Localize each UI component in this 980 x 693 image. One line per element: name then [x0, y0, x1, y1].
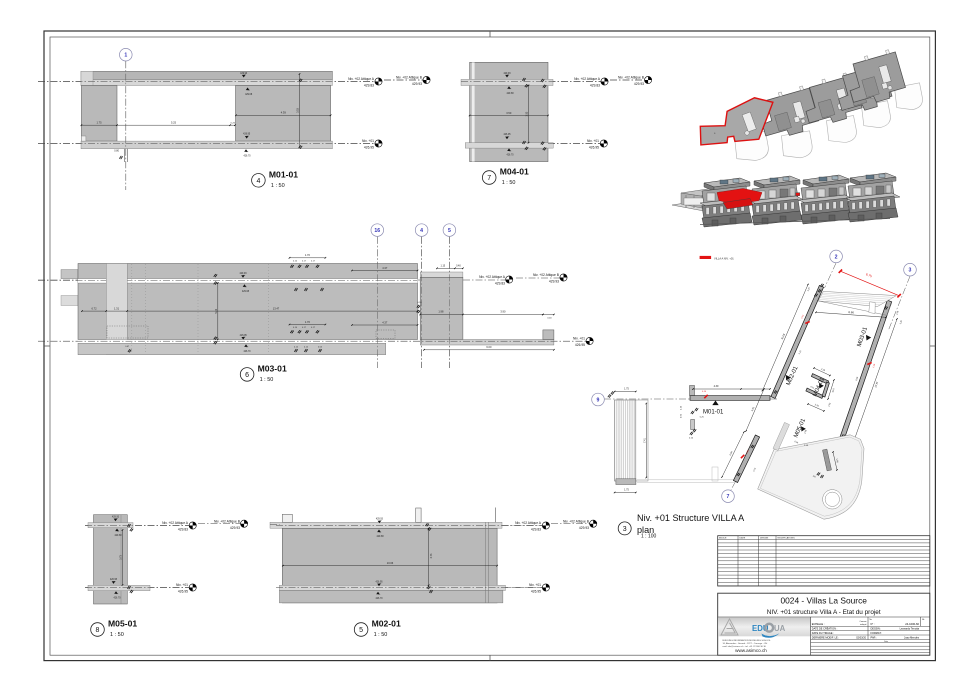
svg-text:426.95: 426.95	[364, 146, 374, 150]
svg-text:DATE DU TIRAGE :: DATE DU TIRAGE :	[812, 632, 834, 635]
svg-text:7: 7	[487, 175, 491, 182]
svg-text:www.asimco.ch: www.asimco.ch	[735, 648, 767, 653]
svg-text:426.95: 426.95	[575, 343, 585, 347]
svg-text:6.72: 6.72	[91, 306, 97, 310]
svg-text:5: 5	[359, 627, 363, 634]
svg-text:429.68: 429.68	[245, 94, 253, 96]
svg-text:5.23: 5.23	[215, 308, 218, 313]
svg-text:8.66: 8.66	[848, 310, 854, 314]
svg-text:M04-01: M04-01	[500, 167, 529, 177]
svg-text:Niv. +01: Niv. +01	[176, 583, 188, 587]
svg-text:1 : 100: 1 : 100	[641, 534, 657, 540]
svg-text:Niv. +01: Niv. +01	[529, 583, 541, 587]
svg-text:7: 7	[727, 494, 730, 500]
svg-text:1 : 50: 1 : 50	[110, 632, 124, 638]
svg-text:Niv. +02 Attique B: Niv. +02 Attique B	[396, 76, 423, 80]
svg-text:0.40: 0.40	[456, 264, 461, 267]
svg-text:4.39: 4.39	[714, 385, 719, 388]
svg-text:M02-01: M02-01	[372, 619, 401, 629]
svg-text:Leonardo Tenutta: Leonardo Tenutta	[900, 628, 920, 631]
svg-text:9: 9	[597, 398, 600, 404]
svg-text:3: 3	[623, 526, 627, 533]
svg-text:429.68: 429.68	[114, 535, 122, 537]
svg-text:429.93: 429.93	[412, 82, 422, 86]
svg-text:1: 1	[124, 53, 127, 59]
svg-text:426.95: 426.95	[110, 579, 118, 581]
svg-text:Niv. +01: Niv. +01	[573, 337, 585, 341]
svg-text:MODIFICATIONS: MODIFICATIONS	[778, 537, 796, 540]
svg-text:426.70: 426.70	[243, 351, 251, 353]
svg-text:3.50: 3.50	[506, 111, 512, 115]
svg-text:16: 16	[374, 228, 380, 234]
svg-text:429.93: 429.93	[549, 280, 559, 284]
svg-text:6: 6	[245, 372, 249, 379]
svg-text:426.70: 426.70	[243, 155, 251, 157]
svg-text:4: 4	[420, 228, 423, 234]
svg-text:02/03/20: 02/03/20	[856, 637, 866, 640]
svg-text:10, Alexandre - Gavard - 1227: 10, Alexandre - Gavard - 1227 - Carouge …	[723, 642, 768, 645]
svg-text:1 : 50: 1 : 50	[502, 180, 516, 186]
svg-text:DATE DE CRÉATION :: DATE DE CRÉATION :	[812, 628, 838, 631]
svg-text:1 : 50: 1 : 50	[260, 377, 274, 383]
svg-text:429.68: 429.68	[506, 93, 514, 95]
svg-text:INDICE: INDICE	[719, 538, 727, 540]
svg-text:DATE: DATE	[740, 537, 746, 540]
svg-text:426.95: 426.95	[240, 335, 248, 337]
svg-text:8: 8	[96, 627, 100, 634]
svg-text:1.75: 1.75	[96, 120, 102, 124]
svg-text:426.95: 426.95	[178, 590, 188, 594]
svg-text:M05-01: M05-01	[108, 619, 137, 629]
svg-text:3.73: 3.73	[430, 553, 433, 558]
svg-text:429.93: 429.93	[579, 526, 589, 530]
svg-text:3: 3	[909, 268, 912, 274]
svg-text:Niv. +02 Attique B: Niv. +02 Attique B	[533, 273, 560, 277]
svg-text:3.90: 3.90	[500, 310, 506, 314]
svg-text:DESSIN :: DESSIN :	[871, 628, 882, 631]
svg-text:426.70: 426.70	[506, 155, 514, 157]
svg-text:5: 5	[448, 228, 451, 234]
svg-text:1.70: 1.70	[305, 320, 311, 324]
svg-text:4.39: 4.39	[281, 111, 287, 115]
svg-text:429.83: 429.83	[495, 282, 505, 286]
svg-text:M01-01: M01-01	[703, 410, 724, 416]
svg-text:3.53: 3.53	[297, 108, 300, 113]
svg-text:426.95: 426.95	[531, 590, 541, 594]
svg-text:UA: UA	[774, 624, 786, 633]
svg-text:2: 2	[835, 254, 838, 260]
svg-text:429.83: 429.83	[531, 528, 541, 532]
svg-text:M01-01: M01-01	[269, 169, 298, 179]
svg-text:426.70: 426.70	[375, 598, 383, 600]
svg-text:426.95: 426.95	[243, 134, 251, 136]
svg-text:Date: Date	[884, 640, 888, 643]
svg-text:3.73: 3.73	[120, 555, 123, 560]
svg-text:Niv. +01 Structure VILLA A: Niv. +01 Structure VILLA A	[637, 513, 745, 523]
svg-text:1.70: 1.70	[305, 253, 311, 257]
svg-text:1.15: 1.15	[440, 264, 445, 267]
svg-text:0024 - Villas La Source: 0024 - Villas La Source	[780, 596, 867, 606]
svg-text:Niv. +02 Attique A: Niv. +02 Attique A	[348, 77, 375, 81]
svg-text:3.53: 3.53	[526, 111, 529, 116]
svg-text:4.37: 4.37	[382, 320, 388, 324]
svg-text:429.93: 429.93	[634, 82, 644, 86]
svg-text:1 : 50: 1 : 50	[271, 183, 285, 189]
svg-text:5.25: 5.25	[171, 120, 177, 124]
svg-text:1 : 50: 1 : 50	[374, 632, 388, 638]
svg-text:429.93: 429.93	[230, 526, 240, 530]
svg-text:13.47: 13.47	[273, 306, 280, 310]
svg-text:DERNIERE MODIF. LE :: DERNIERE MODIF. LE :	[812, 637, 840, 640]
svg-text:429.83: 429.83	[178, 528, 188, 532]
svg-text:DESSIN: DESSIN	[760, 538, 769, 540]
svg-text:Niv. +02 Attique A: Niv. +02 Attique A	[479, 275, 506, 279]
svg-text:426.95: 426.95	[375, 581, 383, 583]
svg-text:429.93: 429.93	[376, 518, 384, 520]
svg-text:Joao Mendes: Joao Mendes	[904, 637, 920, 640]
svg-text:FORMAT :: FORMAT :	[871, 632, 883, 635]
svg-text:429.93: 429.93	[503, 73, 511, 75]
svg-text:VILLA A NIV. +01: VILLA A NIV. +01	[714, 256, 734, 260]
svg-text:426.95: 426.95	[589, 146, 599, 150]
svg-text:NIV. +01 structure Villa A - E: NIV. +01 structure Villa A - Etat du pro…	[767, 609, 881, 616]
svg-text:426.70: 426.70	[113, 598, 121, 600]
svg-text:Comme: Comme	[859, 621, 867, 623]
svg-text:Niv. +01: Niv. +01	[362, 139, 374, 143]
svg-text:Niv. +02 Attique B: Niv. +02 Attique B	[563, 519, 590, 523]
svg-text:6.00: 6.00	[486, 345, 492, 349]
svg-text:1.75: 1.75	[624, 387, 629, 390]
svg-text:Niv. +02 Attique A: Niv. +02 Attique A	[574, 77, 601, 81]
svg-text:4: 4	[256, 178, 260, 185]
svg-text:429.83: 429.83	[590, 84, 600, 88]
svg-text:7.41: 7.41	[643, 438, 646, 443]
svg-text:4.37: 4.37	[382, 266, 388, 270]
svg-text:1.98: 1.98	[438, 310, 444, 314]
svg-text:M03-01: M03-01	[258, 363, 287, 373]
svg-text:429.93: 429.93	[239, 273, 247, 275]
svg-text:429.68: 429.68	[376, 536, 384, 538]
svg-text:10.06: 10.06	[387, 561, 394, 565]
svg-text:429.83: 429.83	[364, 84, 374, 88]
svg-text:No: No	[870, 619, 872, 621]
svg-text:1.75: 1.75	[624, 488, 629, 491]
svg-text:BUILDING INFORMATION MODELING: BUILDING INFORMATION MODELING SCHOOL	[723, 639, 772, 642]
svg-text:ECHELLE :: ECHELLE :	[812, 623, 825, 626]
svg-text:Niv. +02 Attique B: Niv. +02 Attique B	[618, 76, 645, 80]
svg-text:Niv. +02 Attique B: Niv. +02 Attique B	[214, 519, 241, 523]
svg-text:429.93: 429.93	[112, 516, 120, 518]
svg-text:PAR :: PAR :	[871, 637, 878, 640]
svg-text:0.80: 0.80	[114, 150, 119, 153]
svg-text:Niv. +02 Attique A: Niv. +02 Attique A	[162, 521, 189, 525]
svg-text:Niv. +01: Niv. +01	[587, 139, 599, 143]
svg-text:indiqué: indiqué	[860, 624, 867, 626]
svg-text:429.68: 429.68	[242, 291, 250, 293]
svg-text:Niv. +02 Attique A: Niv. +02 Attique A	[515, 521, 542, 525]
svg-text:426.95: 426.95	[503, 134, 511, 136]
svg-text:24-1000-60: 24-1000-60	[905, 622, 919, 626]
svg-text:Nb: Nb	[922, 619, 924, 621]
svg-text:N° :: N° :	[871, 623, 875, 626]
svg-text:1.31: 1.31	[114, 306, 120, 310]
svg-text:429.93: 429.93	[240, 73, 248, 75]
